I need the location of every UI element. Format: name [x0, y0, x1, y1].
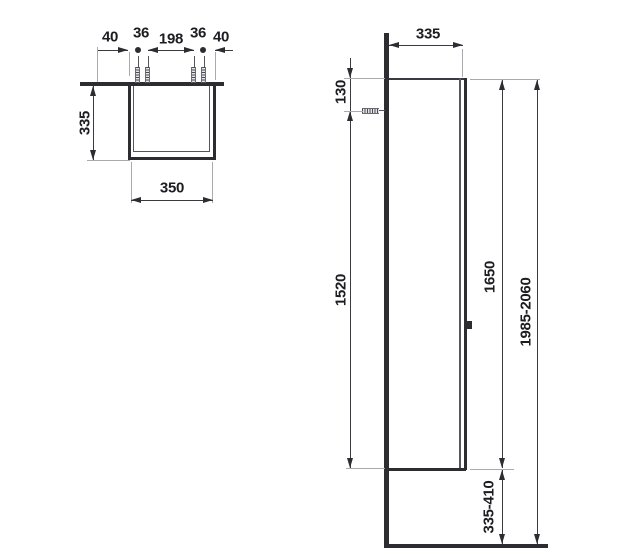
dim-label-total-height: 1985-2060	[519, 277, 534, 346]
arrowhead	[184, 47, 194, 53]
screw-stem	[194, 56, 195, 67]
cabinet-front-wall	[128, 157, 216, 160]
door-handle	[466, 321, 472, 329]
arrowhead	[499, 534, 505, 544]
dimension-line	[537, 80, 538, 544]
arrowhead	[90, 150, 96, 160]
dim-label-base-clearance: 335-410	[482, 481, 497, 534]
arrowhead	[534, 534, 540, 544]
extension-line	[97, 47, 98, 82]
extension-line	[87, 160, 130, 161]
arrowhead	[118, 47, 128, 53]
dimension-line	[502, 80, 503, 468]
dim-label-side-depth: 335	[416, 27, 440, 42]
arrowhead	[453, 42, 463, 48]
extension-line	[470, 469, 514, 470]
dim-label-body-height: 1650	[483, 261, 498, 293]
arrowhead	[347, 111, 353, 121]
screw-stem	[138, 56, 139, 67]
dimension-line	[502, 470, 503, 544]
screw-position-dot	[200, 47, 206, 53]
arrowhead	[499, 458, 505, 468]
floor-line	[384, 544, 548, 548]
arrowhead	[215, 47, 225, 53]
dim-label-offset-right: 40	[213, 30, 229, 45]
extension-line	[215, 52, 216, 80]
arrowhead	[499, 470, 505, 480]
dim-label-screw-to-base: 1520	[334, 274, 349, 306]
screw-icon	[201, 67, 206, 83]
cabinet-left-wall	[128, 86, 131, 160]
extension-line	[344, 111, 363, 112]
arrowhead	[499, 80, 505, 90]
extension-line	[470, 79, 540, 80]
dim-label-screw-gap-right: 36	[190, 26, 206, 41]
extension-line	[129, 52, 130, 76]
cabinet-right-wall	[213, 86, 216, 160]
arrowhead	[90, 86, 96, 96]
dim-label-width: 350	[160, 181, 184, 196]
screw-stem	[204, 56, 205, 67]
screw-icon	[135, 67, 140, 83]
cabinet-left-wall-inner	[133, 86, 134, 152]
cabinet-door-front-edge	[464, 78, 467, 470]
screw-position-dot	[135, 47, 141, 53]
arrowhead	[131, 197, 141, 203]
screw-icon	[145, 67, 150, 83]
extension-line	[344, 78, 385, 79]
dim-label-screw-gap-left: 36	[133, 26, 149, 41]
arrowhead	[347, 458, 353, 468]
screw-stem	[379, 110, 385, 111]
extension-line	[462, 49, 463, 77]
cabinet-right-wall-inner	[209, 86, 210, 152]
screw-icon	[191, 67, 196, 83]
cabinet-front-inner-edge	[459, 78, 461, 468]
screw-stem	[148, 56, 149, 67]
dim-label-top-to-screw: 130	[334, 80, 349, 104]
cabinet-top-edge	[389, 78, 466, 80]
arrowhead	[534, 80, 540, 90]
cabinet-bottom-edge	[389, 468, 466, 471]
arrowhead	[347, 68, 353, 78]
extension-line	[346, 468, 385, 469]
dimension-line	[131, 200, 213, 201]
arrowhead	[389, 42, 399, 48]
dimension-drawing: 40 36 198 36 40 335 350	[0, 0, 641, 558]
dim-label-screw-span: 198	[159, 32, 183, 47]
arrowhead	[203, 197, 213, 203]
cabinet-front-wall-inner	[133, 151, 210, 152]
dim-label-depth: 335	[78, 111, 93, 135]
dimension-line	[389, 45, 463, 46]
arrowhead	[148, 47, 158, 53]
screw-icon	[362, 108, 379, 114]
dim-label-offset-left: 40	[102, 30, 118, 45]
